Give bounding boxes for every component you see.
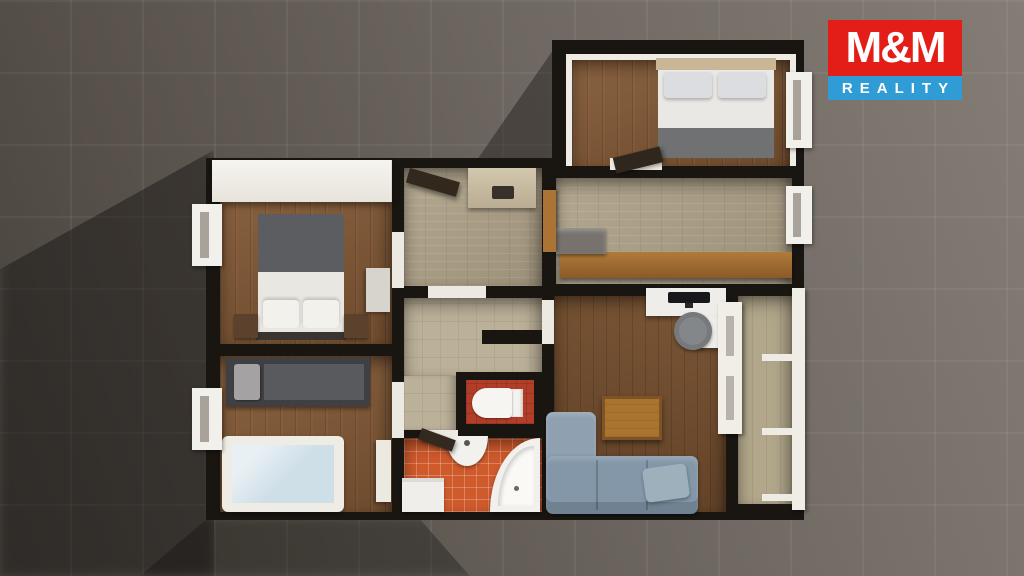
door-gap-kids (392, 382, 404, 438)
logo: M&M REALITY (828, 20, 962, 102)
bed-upper-blanket (658, 128, 774, 158)
bed-master-pillow-right (303, 300, 339, 328)
door-gap-corridor-living (542, 300, 554, 344)
window-master (192, 204, 222, 266)
kitchen-appliance (556, 228, 606, 254)
bathtub-drain (514, 486, 519, 491)
balcony-door-slot-1 (726, 316, 734, 356)
bathroom-sink-faucet (464, 440, 470, 446)
monitor (668, 292, 710, 303)
corridor-floor-arm (404, 376, 456, 430)
window-kitchen (786, 186, 812, 244)
logo-brand: M&M (828, 20, 962, 76)
bed-master-blanket (258, 214, 344, 272)
sofa-pillow (642, 463, 690, 503)
bed-kids-pillow (234, 364, 260, 400)
nightstand-master-left (234, 314, 258, 338)
building-shadow-left (0, 150, 214, 576)
wardrobe-master (212, 160, 392, 202)
bed-master-pillow-left (263, 300, 299, 328)
monitor-stand (685, 303, 693, 308)
corridor-wall-stub (482, 330, 542, 344)
window-upper-bedroom-glass (793, 80, 801, 140)
window-master-glass (200, 212, 209, 258)
dresser-master (366, 268, 390, 312)
balcony-railing-post-2 (762, 428, 792, 435)
balcony-door (718, 302, 742, 434)
sofa-seam-1 (596, 460, 598, 510)
crib (222, 436, 344, 512)
toilet (472, 388, 524, 418)
washing-machine (402, 478, 444, 512)
window-kitchen-glass (793, 193, 801, 237)
balcony-railing (792, 288, 805, 510)
door-gap-hall-corridor (428, 286, 486, 298)
window-kids (192, 388, 222, 450)
bed-upper (656, 58, 776, 158)
scene: M&M REALITY (0, 0, 1024, 576)
door-kitchen-wood (543, 190, 556, 252)
crib-mattress (232, 445, 334, 503)
bed-kids-mattress (264, 364, 364, 400)
corner-sofa (546, 408, 700, 514)
balcony-railing-post-3 (762, 494, 792, 501)
balcony-railing-post-1 (762, 354, 792, 361)
balcony-door-slot-2 (726, 376, 734, 420)
hall-cabinet-object (492, 186, 514, 199)
door-gap-master (392, 232, 404, 288)
office-chair (674, 312, 712, 350)
bed-upper-pillow-left (664, 72, 712, 98)
nightstand-master-right (344, 314, 368, 338)
kitchen-counter (560, 252, 792, 278)
window-upper-bedroom (786, 72, 812, 148)
bed-upper-headboard (656, 58, 776, 70)
balcony-floor (738, 296, 792, 504)
door-leaf-kids (376, 440, 391, 502)
window-kids-glass (200, 396, 209, 442)
logo-tagline: REALITY (828, 76, 962, 100)
bed-master-headboard (256, 332, 346, 340)
bed-kids (226, 358, 370, 406)
building-shadow-wing (470, 40, 560, 170)
toilet-bowl (472, 388, 512, 418)
bed-master (258, 214, 344, 340)
bed-upper-pillow-right (718, 72, 766, 98)
